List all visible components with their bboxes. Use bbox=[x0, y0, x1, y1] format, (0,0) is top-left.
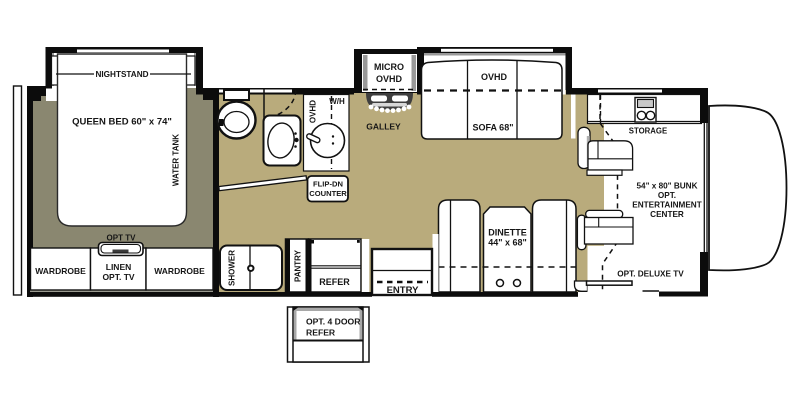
svg-text:REFER: REFER bbox=[306, 327, 336, 337]
svg-text:PANTRY: PANTRY bbox=[293, 249, 302, 282]
svg-text:ENTRY: ENTRY bbox=[387, 285, 420, 296]
svg-text:GALLEY: GALLEY bbox=[366, 122, 401, 132]
svg-text:OVHD: OVHD bbox=[309, 100, 318, 123]
svg-text:OPT.: OPT. bbox=[658, 191, 676, 200]
svg-text:44" x 68": 44" x 68" bbox=[488, 238, 527, 248]
svg-text:DINETTE: DINETTE bbox=[488, 228, 527, 238]
svg-text:CENTER: CENTER bbox=[650, 210, 684, 219]
svg-text:OPT. 4 DOOR: OPT. 4 DOOR bbox=[306, 317, 361, 327]
svg-text:OVHD: OVHD bbox=[376, 74, 403, 84]
svg-text:STORAGE: STORAGE bbox=[629, 127, 667, 136]
svg-text:NIGHTSTAND: NIGHTSTAND bbox=[95, 70, 148, 79]
svg-text:COUNTER: COUNTER bbox=[309, 189, 347, 198]
svg-text:QUEEN BED 60" x 74": QUEEN BED 60" x 74" bbox=[72, 117, 172, 128]
svg-text:WATER TANK: WATER TANK bbox=[172, 134, 181, 186]
svg-text:54" x 80" BUNK: 54" x 80" BUNK bbox=[636, 182, 697, 191]
svg-text:SHOWER: SHOWER bbox=[228, 250, 237, 286]
svg-text:WARDROBE: WARDROBE bbox=[154, 266, 205, 276]
svg-text:OVHD: OVHD bbox=[481, 72, 508, 82]
svg-text:OPT TV: OPT TV bbox=[107, 234, 137, 243]
svg-text:FLIP-DN: FLIP-DN bbox=[313, 180, 343, 189]
svg-text:WARDROBE: WARDROBE bbox=[35, 266, 86, 276]
svg-text:REFER: REFER bbox=[319, 277, 350, 287]
svg-text:ENTERTAINMENT: ENTERTAINMENT bbox=[632, 201, 701, 210]
svg-text:LINEN: LINEN bbox=[106, 262, 132, 272]
svg-text:OPT. TV: OPT. TV bbox=[102, 272, 134, 282]
svg-text:OPT. DELUXE TV: OPT. DELUXE TV bbox=[617, 270, 684, 279]
svg-text:SOFA 68": SOFA 68" bbox=[473, 123, 514, 133]
svg-text:MICRO: MICRO bbox=[374, 62, 404, 72]
